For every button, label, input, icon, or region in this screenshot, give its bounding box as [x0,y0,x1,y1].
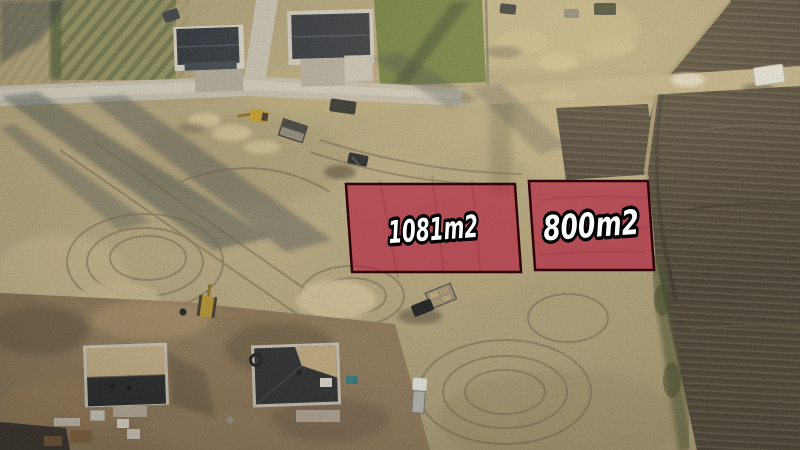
plot-overlay-1: 1081m2 [346,184,521,272]
plot-overlay-2: 800m2 [529,181,654,270]
plot-label-1: 1081m2 [387,209,479,251]
plot-annotations: 1081m2 800m2 [346,181,654,272]
aerial-scene: 1081m2 800m2 [0,0,800,450]
plot-label-2: 800m2 [542,203,641,250]
aerial-photo: 1081m2 800m2 [0,0,800,450]
